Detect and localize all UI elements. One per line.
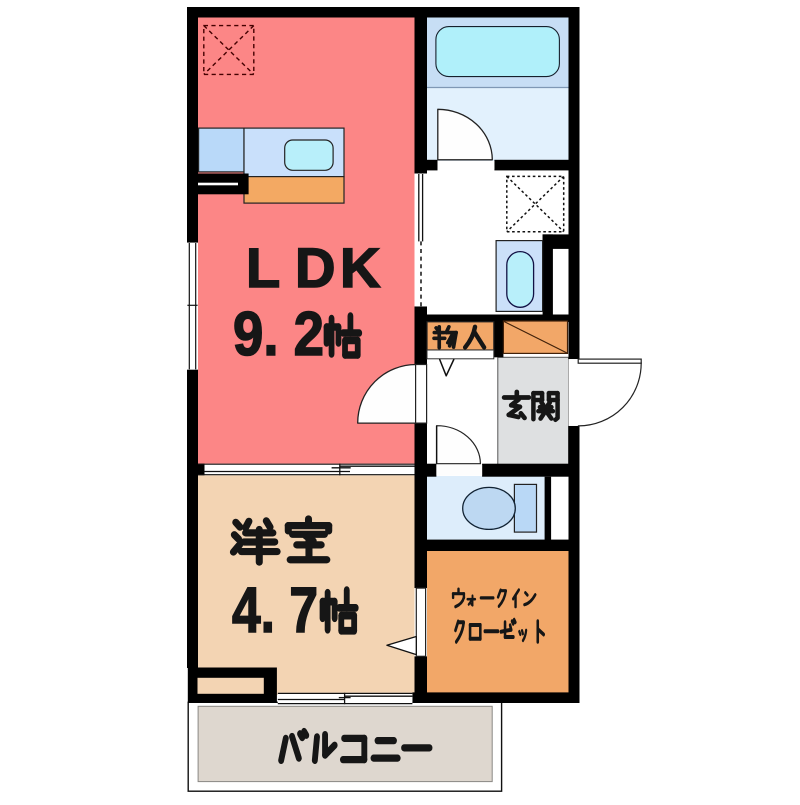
svg-text:D: D: [295, 236, 335, 299]
svg-text:9. 2: 9. 2: [233, 300, 324, 369]
svg-text:K: K: [340, 236, 380, 299]
svg-text:4. 7: 4. 7: [232, 574, 318, 646]
svg-text:L: L: [246, 236, 280, 299]
